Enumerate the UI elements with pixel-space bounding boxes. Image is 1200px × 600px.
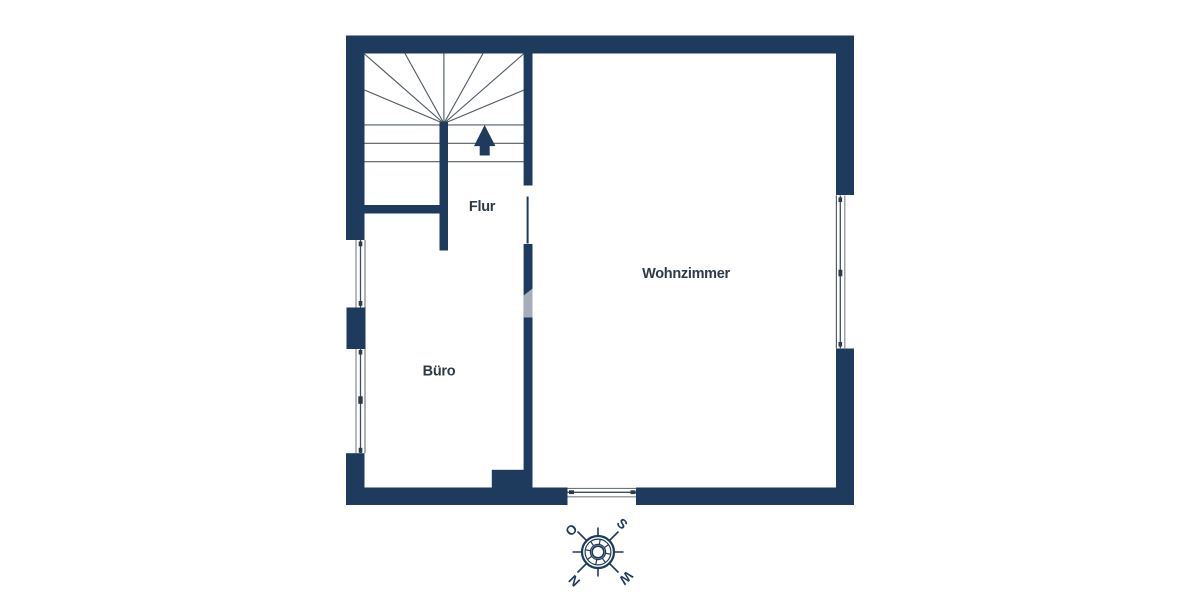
svg-text:Flur: Flur: [469, 199, 496, 215]
svg-text:Büro: Büro: [423, 364, 456, 380]
svg-text:Wohnzimmer: Wohnzimmer: [642, 266, 730, 282]
